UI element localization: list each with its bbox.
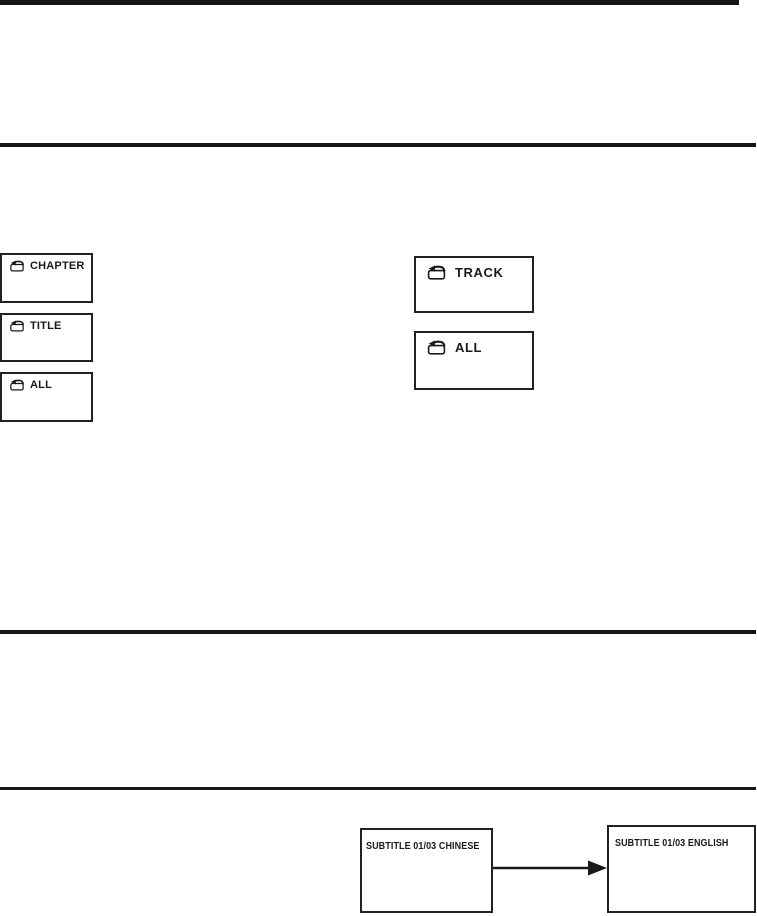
- repeat-folder-icon: [9, 260, 25, 272]
- repeat-folder-icon: [9, 379, 25, 391]
- osd-box-subtitle-before: SUBTITLE 01/03 CHINESE: [360, 828, 493, 913]
- osd-box-repeat-all-cd: ALL: [414, 331, 534, 390]
- subtitle-before-text: SUBTITLE 01/03 CHINESE: [366, 841, 480, 852]
- repeat-folder-icon: [426, 265, 447, 280]
- osd-label-chapter: CHAPTER: [30, 260, 85, 272]
- repeat-folder-icon: [426, 340, 447, 355]
- osd-label-title: TITLE: [30, 320, 62, 332]
- section-divider-2: [0, 630, 756, 634]
- section-divider-3: [0, 787, 756, 790]
- osd-label-all-dvd: ALL: [30, 379, 52, 391]
- osd-box-repeat-all-dvd: ALL: [0, 372, 93, 422]
- manual-page: CHAPTER TITLE ALL: [0, 0, 757, 916]
- repeat-folder-icon: [9, 320, 25, 332]
- osd-box-repeat-track: TRACK: [414, 256, 534, 313]
- right-arrow-icon: [493, 858, 607, 878]
- osd-box-repeat-chapter: CHAPTER: [0, 253, 93, 303]
- section-divider-1: [0, 143, 756, 147]
- osd-box-subtitle-after: SUBTITLE 01/03 ENGLISH: [607, 825, 756, 913]
- osd-label-track: TRACK: [455, 265, 504, 280]
- osd-box-repeat-title: TITLE: [0, 313, 93, 362]
- subtitle-after-text: SUBTITLE 01/03 ENGLISH: [615, 838, 729, 849]
- osd-label-all-cd: ALL: [455, 340, 482, 355]
- page-top-bar: [0, 0, 739, 5]
